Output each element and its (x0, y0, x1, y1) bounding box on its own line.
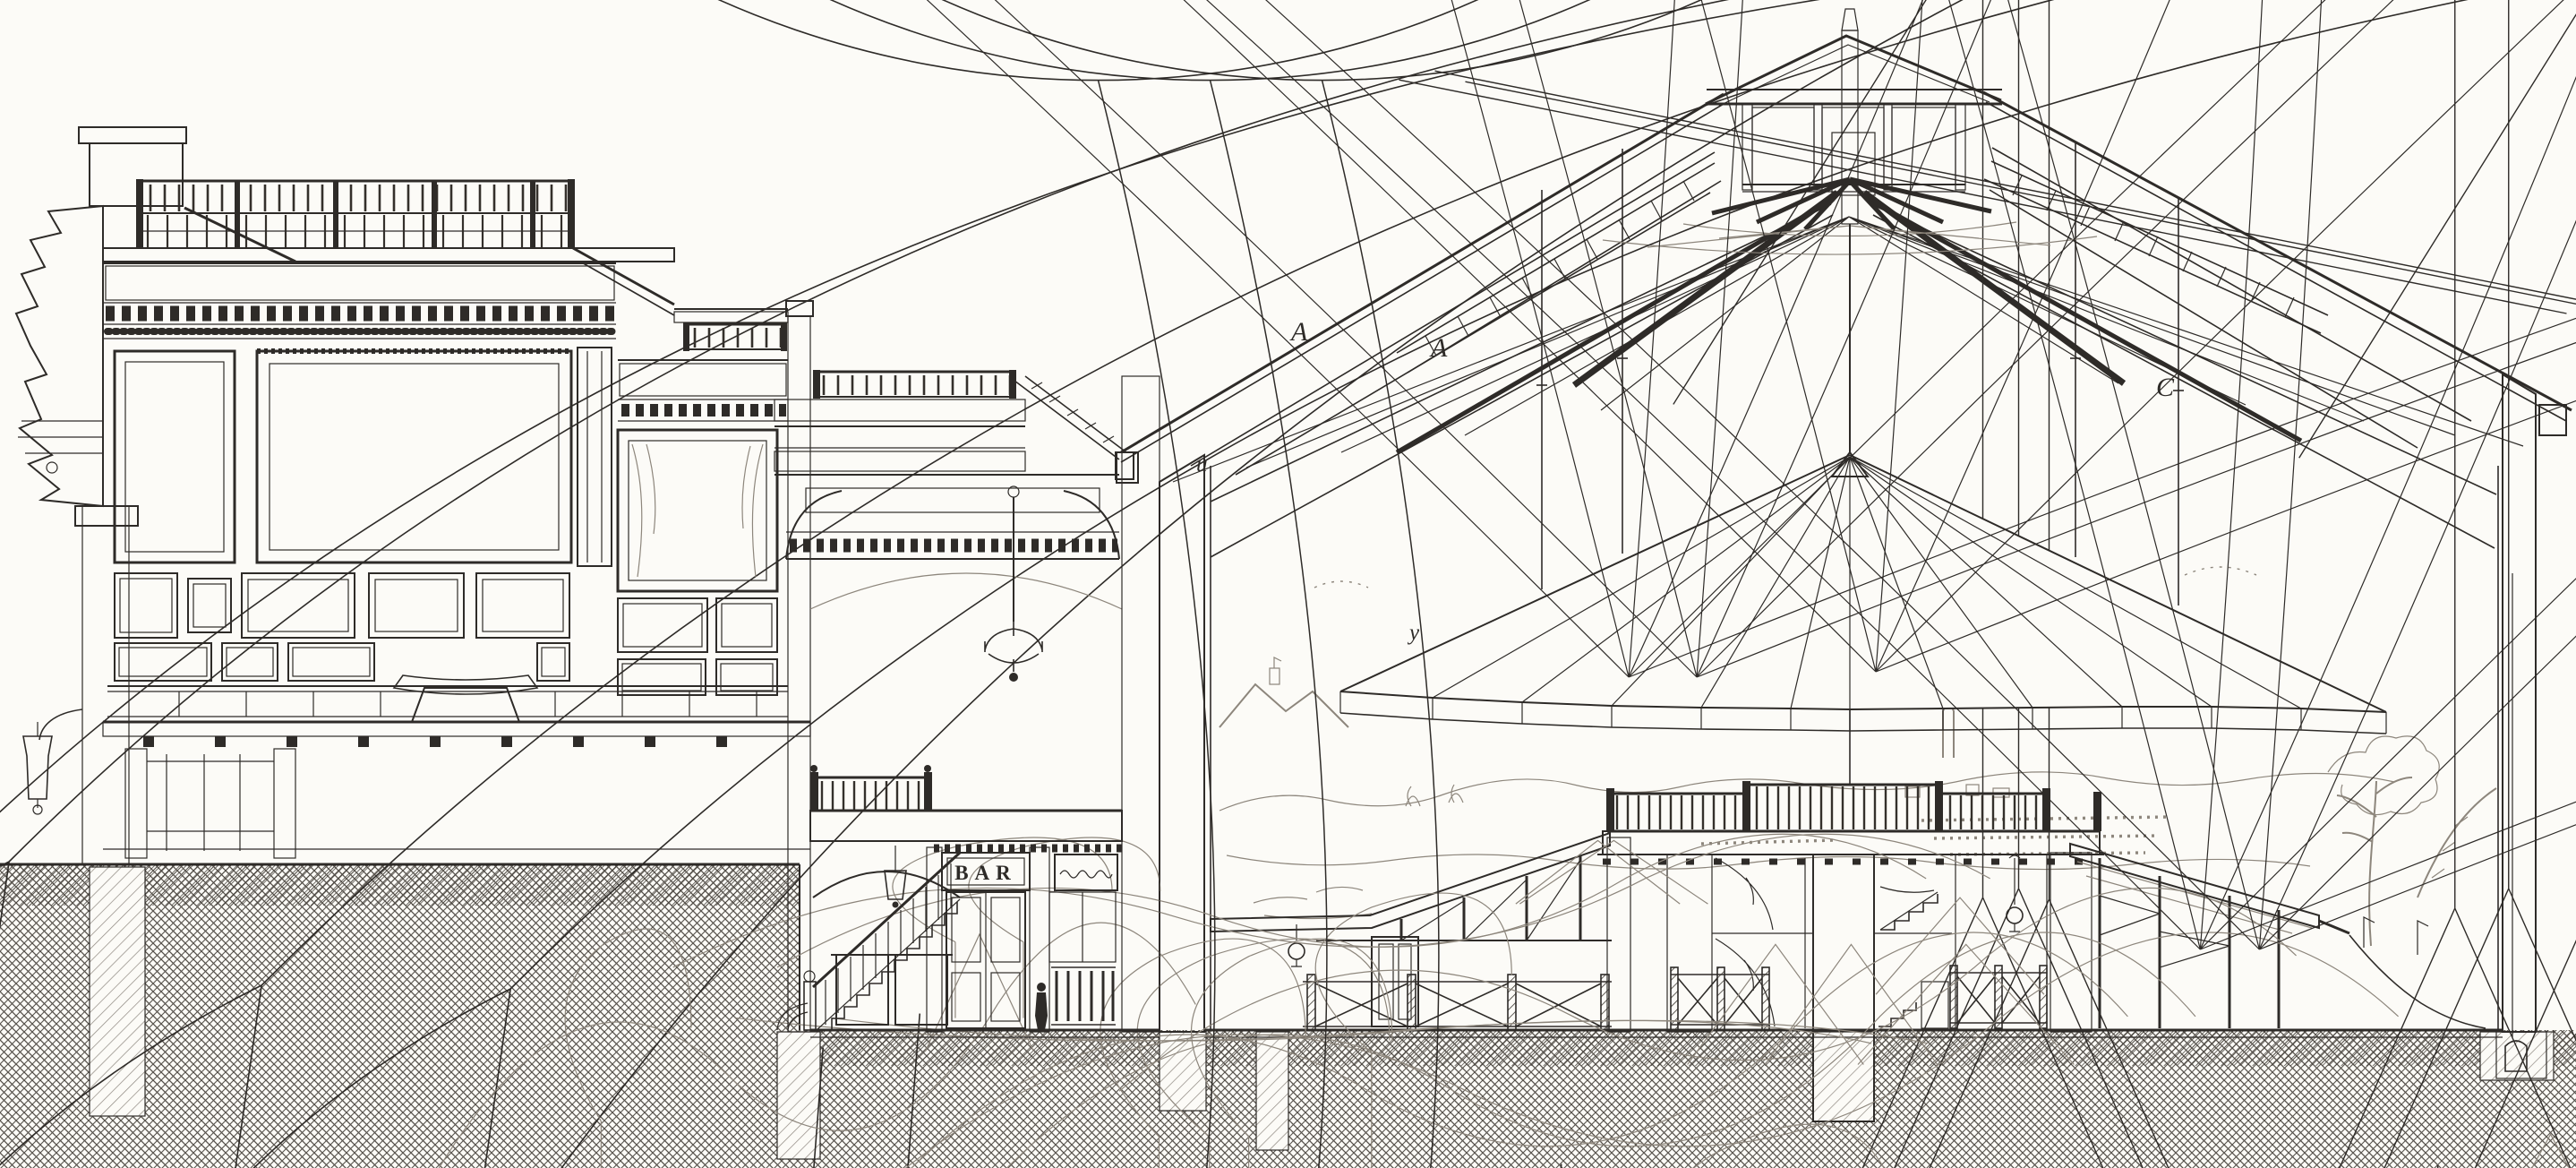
engraving-canvas: BAR A A u y C (0, 0, 2576, 1168)
annotation-letter: y (1407, 621, 1420, 645)
bar-sign-text: BAR (954, 862, 1017, 884)
annotation-letter: u (1196, 452, 1208, 477)
annotation-letter: A (1289, 317, 1308, 347)
annotation-letter: A (1429, 333, 1448, 363)
architectural-section-drawing: BAR A A u y C (0, 0, 2576, 1168)
bar-sign: BAR (942, 853, 1030, 890)
annotation-letter: C (2156, 373, 2175, 402)
